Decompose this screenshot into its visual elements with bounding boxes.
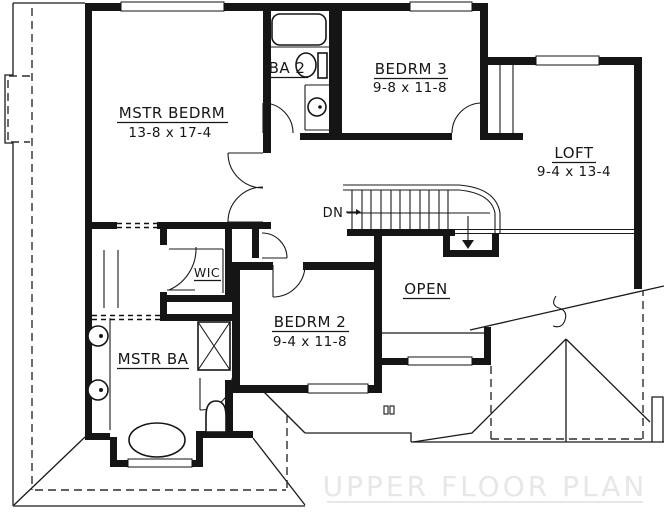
window — [121, 2, 224, 11]
window — [128, 459, 192, 467]
bedrm2-door — [273, 265, 305, 297]
room-dims: 13-8 x 17-4 — [128, 125, 211, 141]
bedrm3-door — [452, 103, 482, 133]
bathtub-icon — [272, 14, 326, 45]
room-label-bedrm2: BEDRM 2 9-4 x 11-8 — [272, 313, 349, 350]
window — [408, 357, 472, 365]
double-door-leaf — [228, 153, 263, 188]
toilet-tank-icon — [318, 53, 327, 78]
vanity-sink-icon — [88, 380, 108, 400]
stairs — [343, 185, 634, 249]
hall-closet-shelves — [500, 65, 513, 133]
roof-dashed-lines — [8, 8, 643, 490]
room-label-bedrm3: BEDRM 3 9-8 x 11-8 — [373, 60, 448, 96]
stair-treads — [352, 190, 448, 229]
room-name: MSTR BA — [118, 350, 189, 368]
room-name: BA 2 — [269, 59, 306, 77]
down-arrow-icon — [462, 240, 474, 249]
dn-label: DN — [323, 206, 344, 221]
plan-title-text: UPPER FLOOR PLAN — [323, 470, 648, 503]
walls — [85, 3, 642, 467]
sink-icon — [308, 98, 326, 116]
floor-plan-canvas: MSTR BEDRM 13-8 x 17-4 BA 2 BEDRM 3 9-8 … — [0, 0, 664, 512]
room-label-open: OPEN — [403, 280, 450, 299]
room-name: BEDRM 2 — [274, 313, 347, 331]
toilet-icon — [206, 401, 226, 432]
wic-door — [167, 247, 196, 290]
double-door-leaf — [228, 187, 263, 222]
room-label-loft: LOFT 9-4 x 13-4 — [537, 144, 611, 180]
window — [536, 56, 599, 65]
room-name: WIC — [194, 265, 220, 280]
room-label-mstr-bedrm: MSTR BEDRM 13-8 x 17-4 — [117, 104, 228, 141]
room-dims: 9-8 x 11-8 — [373, 80, 447, 96]
oval-tub-icon — [129, 423, 185, 457]
vanity-sink-icon — [88, 326, 108, 346]
loft-railing — [455, 230, 634, 234]
floor-plan-page: MSTR BEDRM 13-8 x 17-4 BA 2 BEDRM 3 9-8 … — [0, 0, 664, 512]
room-name: OPEN — [404, 280, 448, 298]
window — [308, 384, 368, 393]
window — [410, 2, 472, 11]
plan-title: UPPER FLOOR PLAN — [323, 470, 648, 503]
cased-openings — [92, 224, 160, 320]
room-label-mstr-ba: MSTR BA — [117, 350, 189, 369]
room-name: LOFT — [554, 144, 593, 162]
room-dims: 9-4 x 11-8 — [273, 334, 347, 350]
shower-stall-icon — [198, 322, 230, 370]
room-label-ba2: BA 2 — [266, 59, 308, 78]
linen-door — [262, 233, 287, 258]
room-label-wic: WIC — [194, 265, 221, 281]
dn-arrow-tick — [356, 209, 361, 215]
room-dims: 9-4 x 13-4 — [537, 164, 611, 180]
linen-closet-lines — [104, 250, 118, 308]
stairs-label: DN — [323, 206, 344, 221]
room-name: MSTR BEDRM — [119, 104, 226, 122]
room-name: BEDRM 3 — [375, 60, 448, 78]
